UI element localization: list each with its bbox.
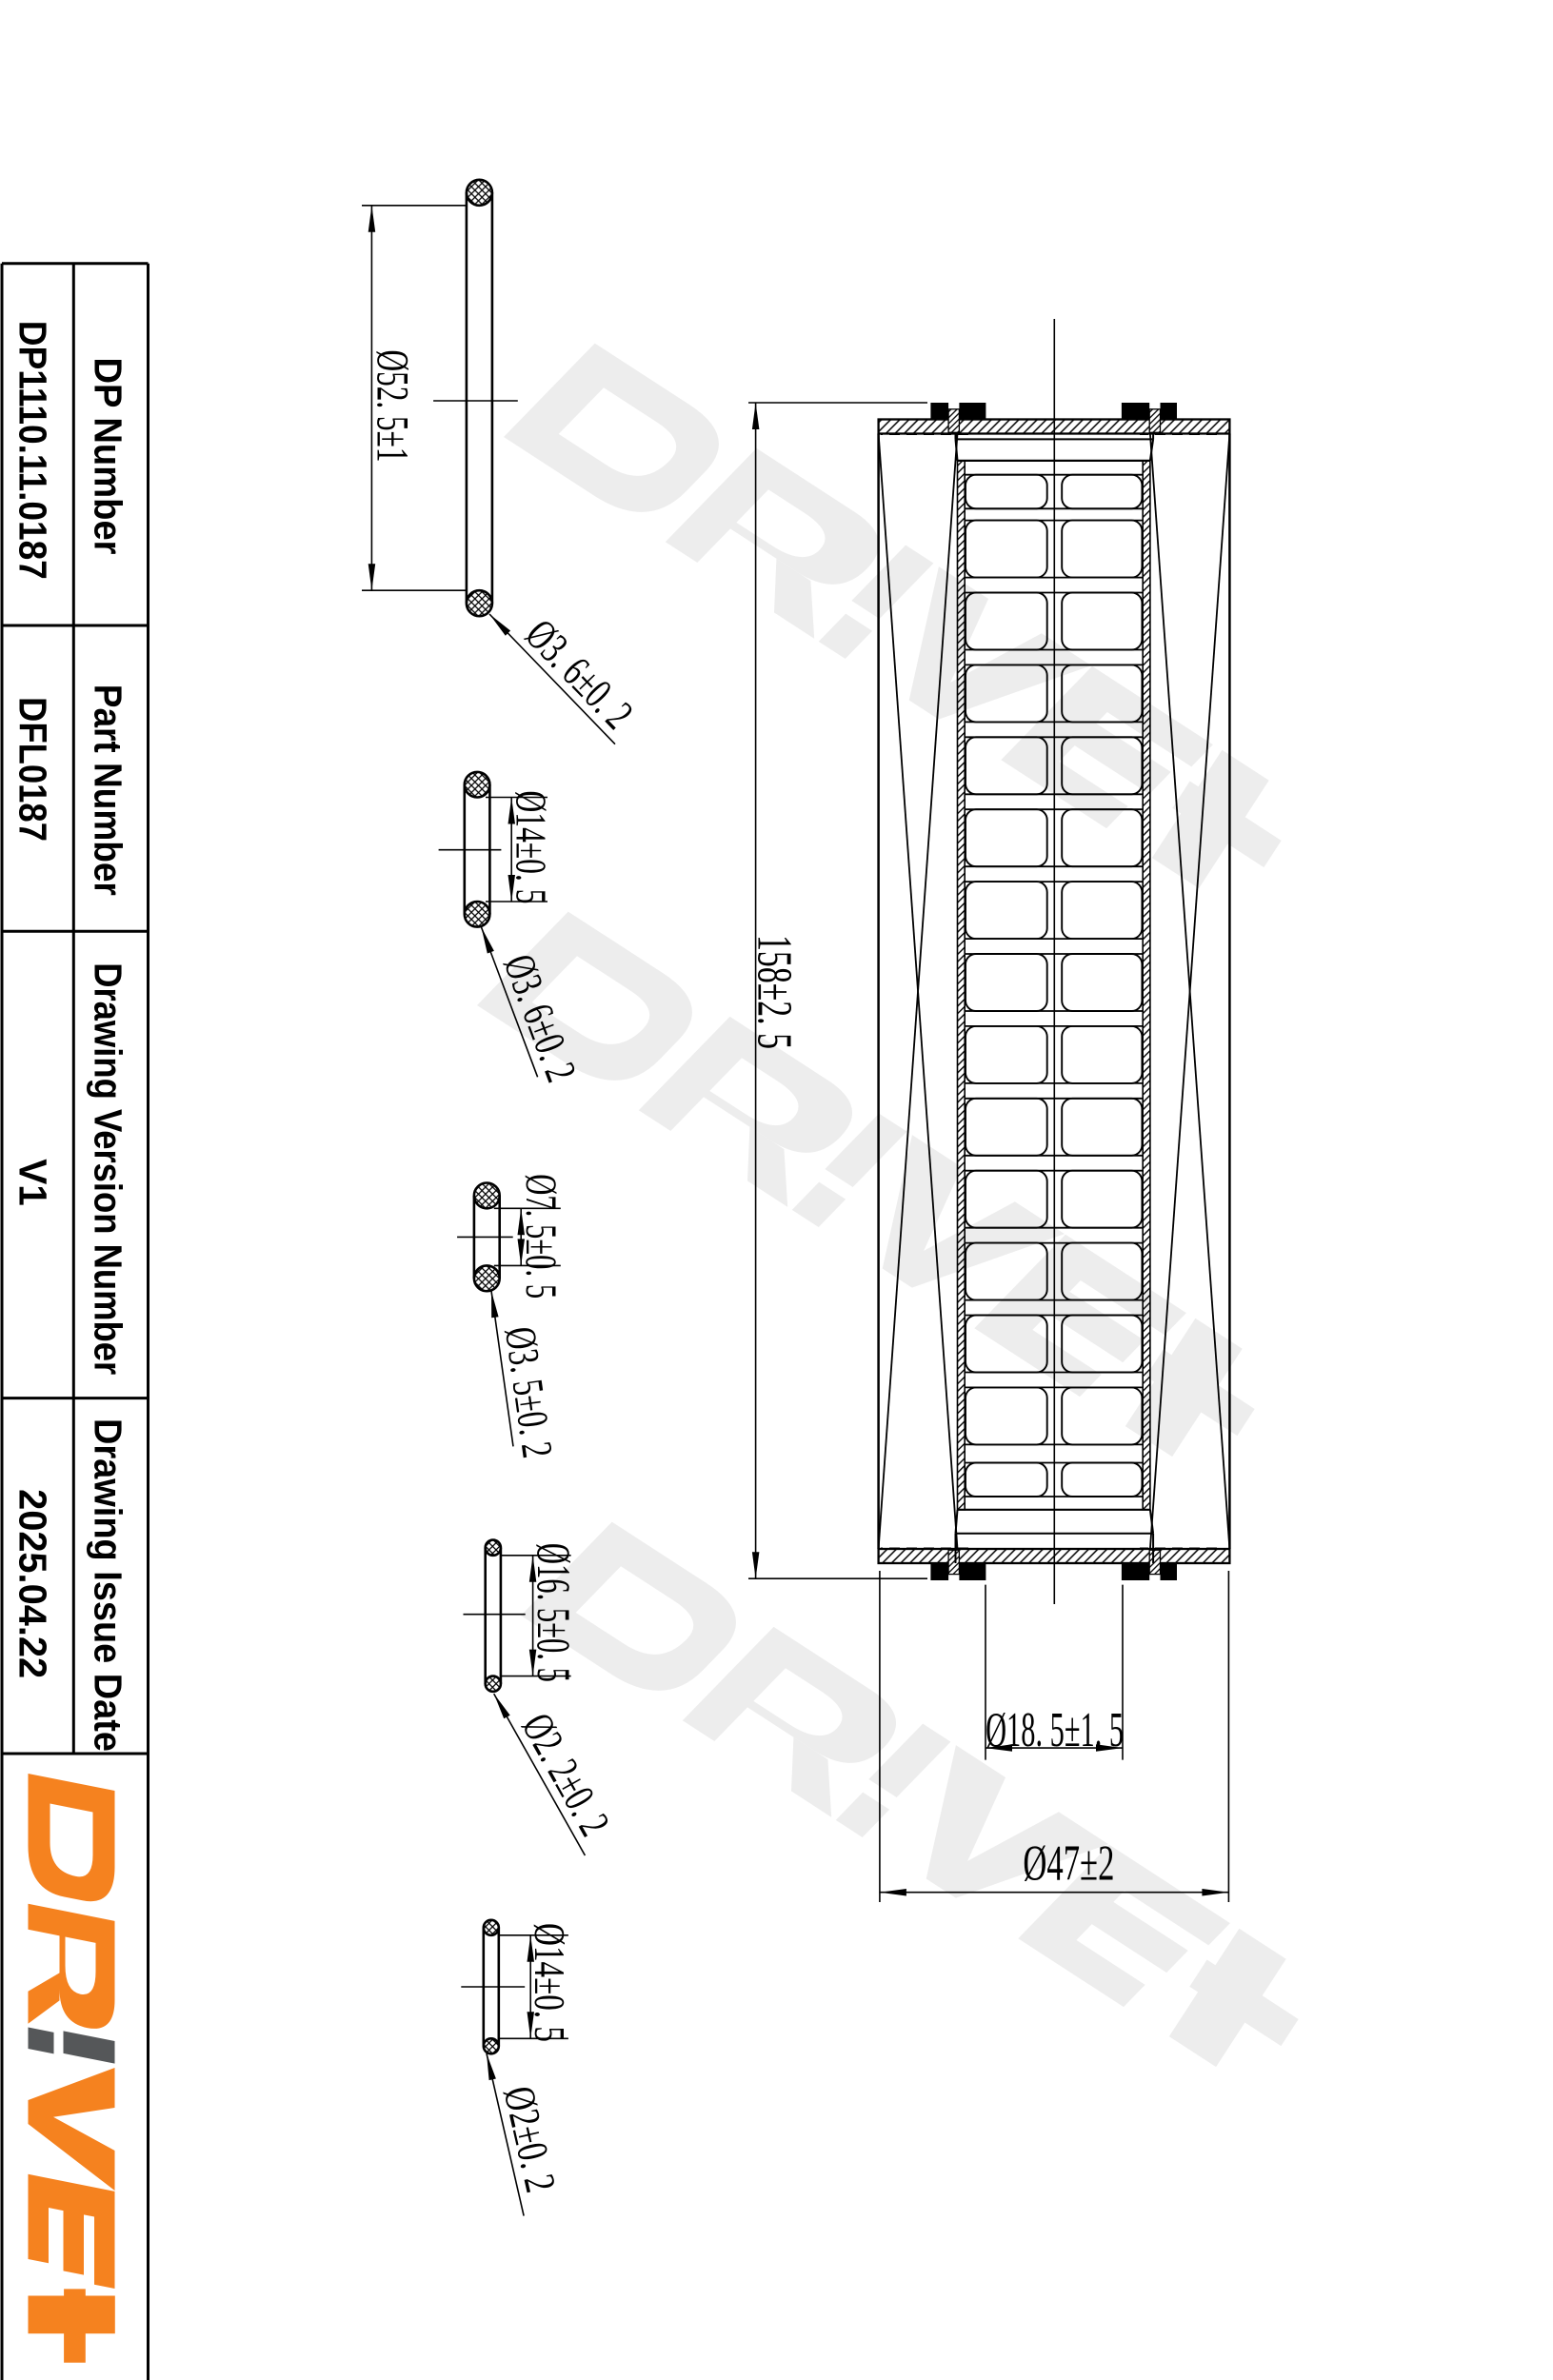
svg-text:Ø16. 5±0. 5: Ø16. 5±0. 5 (528, 1543, 581, 1682)
svg-text:DFL0187: DFL0187 (11, 697, 55, 842)
svg-text:Ø14±0. 5: Ø14±0. 5 (508, 791, 556, 904)
svg-text:Part Number: Part Number (87, 684, 130, 896)
svg-text:158±2. 5: 158±2. 5 (747, 935, 802, 1049)
svg-text:DP1110.11.0187: DP1110.11.0187 (11, 321, 55, 580)
svg-text:Ø14±0. 5: Ø14±0. 5 (526, 1923, 574, 2042)
svg-text:Ø52. 5±1: Ø52. 5±1 (367, 350, 417, 463)
svg-text:DP Number: DP Number (87, 358, 130, 555)
svg-text:V1: V1 (11, 1159, 55, 1206)
svg-text:Drawing Issue Date: Drawing Issue Date (87, 1418, 130, 1752)
svg-text:Ø18. 5±1. 5: Ø18. 5±1. 5 (986, 1703, 1124, 1757)
svg-text:Ø47±2: Ø47±2 (1023, 1836, 1114, 1892)
svg-text:Drawing Version Number: Drawing Version Number (87, 962, 130, 1375)
svg-text:Ø7. 5±0. 5: Ø7. 5±0. 5 (516, 1174, 566, 1299)
svg-text:2025.04.22: 2025.04.22 (11, 1489, 55, 1678)
